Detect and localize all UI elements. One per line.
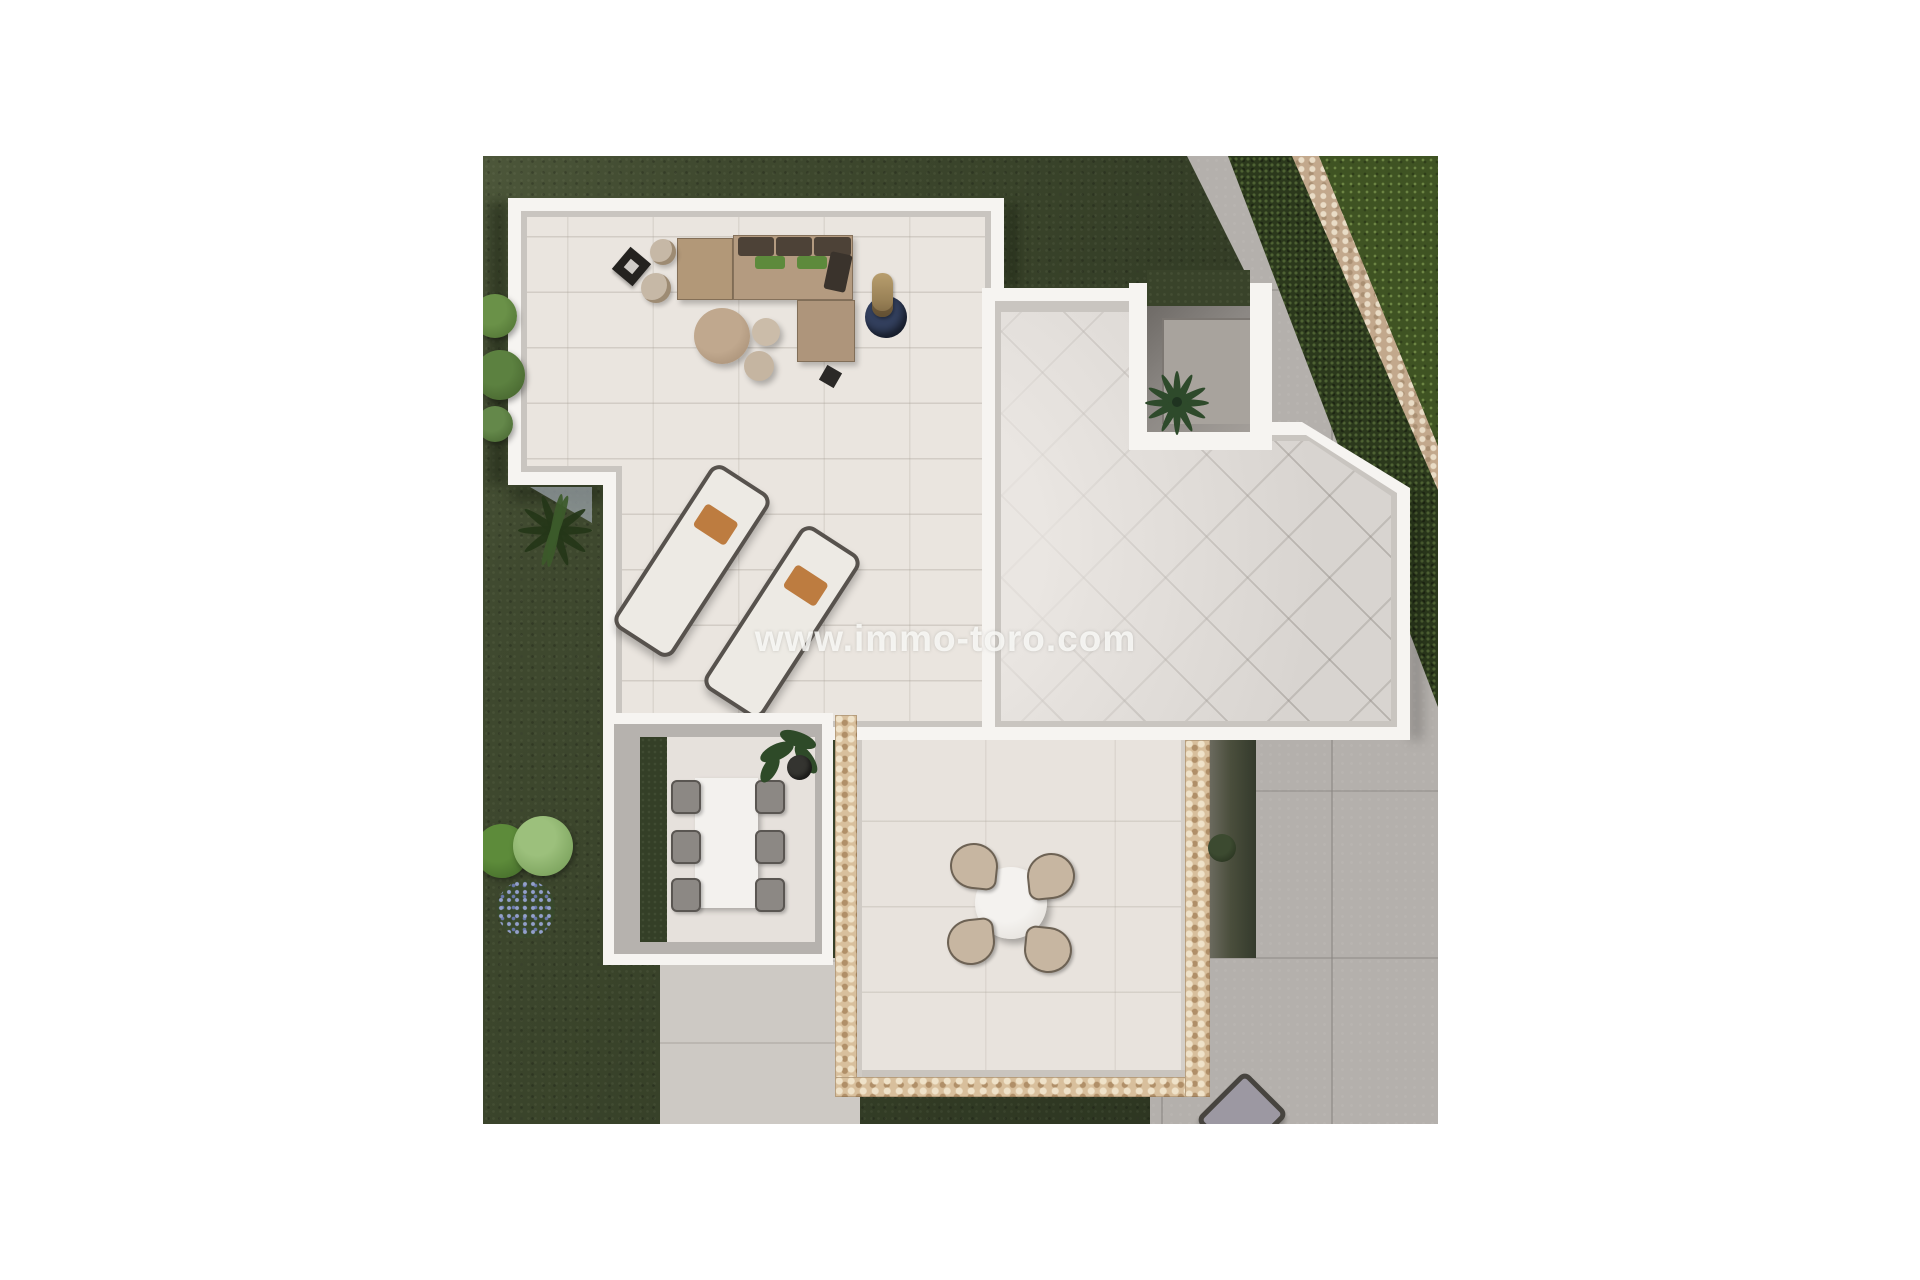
blue-flower-cluster	[497, 880, 555, 938]
sofa-green-pillow	[755, 256, 785, 269]
dining-chair	[671, 780, 701, 814]
mosaic-border-bottom	[835, 1077, 1210, 1097]
mosaic-border-right	[1185, 740, 1210, 1097]
dining-chair	[755, 878, 785, 912]
lounger-pillow	[782, 564, 829, 607]
dining-chair	[671, 830, 701, 864]
round-ottoman	[694, 308, 750, 364]
cylinder-side-table	[650, 239, 676, 265]
palm-center	[1172, 397, 1182, 407]
dining-table	[695, 778, 758, 908]
small-pouf	[744, 351, 774, 381]
watermark: www.immo-toro.com	[483, 618, 1423, 660]
courtyard-grass-strip	[1147, 270, 1250, 306]
shrub-ball	[1208, 834, 1236, 862]
sofa-chaise	[797, 300, 855, 362]
column-plant	[872, 273, 893, 317]
aerial-photo: www.immo-toro.com	[483, 156, 1438, 1124]
bush-light	[513, 816, 573, 876]
lounger-pillow	[692, 503, 739, 546]
terrace-shadow-right	[1005, 204, 1017, 288]
dining-plant-pot	[787, 755, 812, 780]
page-canvas: www.immo-toro.com	[0, 0, 1920, 1280]
dining-chair	[671, 878, 701, 912]
palm-plant	[1145, 371, 1209, 435]
mosaic-border-left	[835, 715, 857, 1097]
dining-grass-strip	[640, 737, 667, 942]
light-paving	[660, 958, 860, 1124]
small-pouf	[752, 318, 780, 346]
sofa-green-pillow	[797, 256, 827, 269]
tray	[624, 259, 639, 274]
dining-chair	[755, 830, 785, 864]
sofa-cushion	[776, 237, 812, 256]
cylinder-side-table	[641, 273, 671, 303]
dining-chair	[755, 780, 785, 814]
agave-plant	[515, 490, 595, 570]
sofa-cushion	[738, 237, 774, 256]
sofa-module-left	[677, 238, 733, 300]
